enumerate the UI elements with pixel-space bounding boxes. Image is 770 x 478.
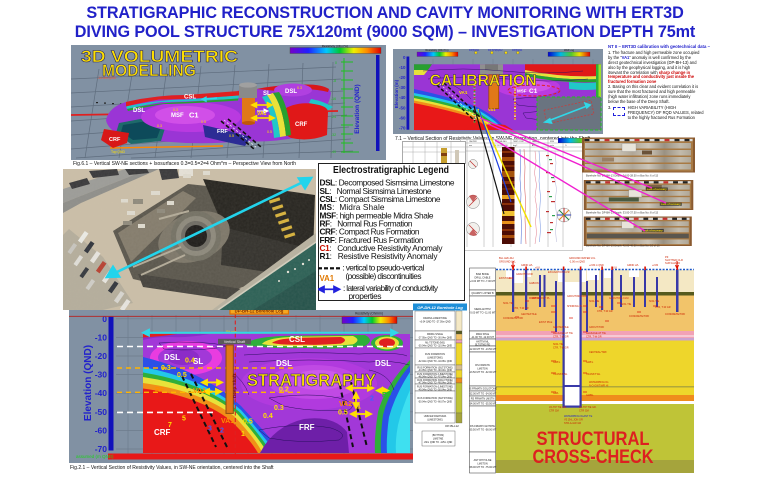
svg-text:GROUND LVL: GROUND LVL [499,259,516,263]
svg-text:GEOTEXTILE: GEOTEXTILE [521,313,537,316]
svg-text:properties: properties [349,291,382,301]
svg-text:CROSS-CHECK: CROSS-CHECK [533,446,654,468]
svg-text:0.5: 0.5 [338,410,348,417]
svg-text:0: 0 [335,61,337,65]
svg-text:SOIL TIE: SOIL TIE [503,302,513,305]
svg-text:TRANST WL: TRANST WL [586,373,601,376]
svg-text:-11.00 TO -12.00 MT: -11.00 TO -12.00 MT [471,336,495,339]
svg-text:STR-A-GW GR: STR-A-GW GR [564,422,581,425]
svg-text:CALIPER: CALIPER [469,140,477,143]
svg-text:-5.00 MT TO -11.00 MT: -5.00 MT TO -11.00 MT [470,311,496,314]
svg-text:Well Log: Well Log [564,49,575,52]
svg-text:CONCRETE/TWF: CONCRETE/TWF [629,315,650,318]
svg-text:MSF: MSF [517,89,527,94]
svg-text:DSL: DSL [375,359,391,368]
svg-text:Resistivity (Ohm*m): Resistivity (Ohm*m) [322,45,349,48]
svg-text:DP-BH-12 Borehole Log: DP-BH-12 Borehole Log [235,310,284,314]
svg-text:GWFL: GWFL [586,361,594,364]
svg-text:OP-BH-12: OP-BH-12 [445,424,459,428]
svg-text:BH- H2b-DH: BH- H2b-DH [499,256,514,260]
svg-text:SOIL TIE: SOIL TIE [621,303,631,306]
svg-text:DSL: DSL [276,359,292,368]
svg-text:GRND LVL: GRND LVL [627,264,639,267]
svg-text:GABION: GABION [529,282,539,285]
svg-text:RF: RF [155,387,165,394]
svg-text:GROUND WATER LVL: GROUND WATER LVL [569,256,596,260]
svg-text:-82m QND TO -115m QND: -82m QND TO -115m QND [424,441,453,444]
svg-text:EXCAVATION CVR: EXCAVATION CVR [548,271,570,274]
svg-text:R1: Resistive Resistivity An: R1: Resistive Resistivity Anomaly [320,251,439,261]
svg-text:0: 0 [403,55,406,60]
svg-text:Resistivity (Ohm*m): Resistivity (Ohm*m) [426,49,449,52]
svg-text:CONCRETE/TWF: CONCRETE/TWF [665,313,686,316]
svg-text:-10: -10 [399,65,406,70]
svg-text:-70: -70 [399,126,406,131]
svg-text:-70: -70 [95,444,108,454]
svg-text:DSL: DSL [285,89,297,95]
svg-text:GROUT/TWF: GROUT/TWF [589,326,605,329]
svg-text:Elevation (m): Elevation (m) [394,79,399,108]
svg-text:Lack of recovery: Lack of recovery [661,203,681,206]
svg-text:SUP.GUARD: SUP.GUARD [665,261,680,265]
svg-text:us/m: us/m [550,145,554,147]
svg-text:VA2: VA2 [339,401,352,408]
svg-text:+0.8: +0.8 [612,267,617,270]
svg-text:7: 7 [168,422,172,429]
svg-text:MSF: MSF [171,113,184,119]
svg-text:RF: RF [382,392,392,399]
svg-text:0.3: 0.3 [274,405,284,412]
svg-text:-44.05m QND TO -46.04m QND: -44.05m QND TO -46.04m QND [418,369,452,372]
svg-text:-13.50 MT TO -32.00 MT: -13.50 MT TO -32.00 MT [469,371,497,374]
svg-text:+2.80: +2.80 [652,264,659,267]
svg-text:-20: -20 [95,351,108,361]
svg-text:-30.04m QND TO -32.04m QND: -30.04m QND TO -32.04m QND [418,345,452,348]
svg-text:CRF: CRF [295,122,308,128]
svg-text:DP(B)#11: DP(B)#11 [512,49,523,52]
svg-text:Borehole No: DP-BH-13 Dep: Borehole No: DP-BH-13 Depth: 24.00-28.50… [586,174,659,178]
svg-text:Vertical Shaft: Vertical Shaft [224,340,245,344]
svg-text:RS FRMATN LMSTN: RS FRMATN LMSTN [471,398,495,401]
svg-text:VA1: VA1 [459,90,468,95]
svg-text:CTR, T-W GR: CTR, T-W GR [597,310,613,313]
svg-text:DP-BH(B)#12: DP-BH(B)#12 [488,49,503,52]
svg-text:0° 90° 180° 270°: 0° 90° 180° 270° [495,145,509,147]
svg-text:-60: -60 [95,425,108,435]
svg-text:-40: -40 [399,95,406,100]
svg-text:-35.50 MT TO -58.00 MT: -35.50 MT TO -58.00 MT [469,428,497,431]
svg-text:0.2: 0.2 [279,387,289,394]
svg-text:-20: -20 [399,75,406,80]
svg-text:CSL: CSL [289,335,305,344]
svg-text:RS FRMATN DOLOTONE: RS FRMATN DOLOTONE [469,388,497,391]
svg-text:TRANST WL: TRANST WL [553,373,568,376]
svg-text:1: 1 [357,404,361,411]
svg-text:JET GROUT PL: JET GROUT PL [532,297,550,300]
svg-text:-50: -50 [95,407,108,417]
svg-text:0.4: 0.4 [263,413,273,420]
svg-text:0.3: 0.3 [161,365,171,372]
svg-text:-47.04m QND TO -49.04m QND: -47.04m QND TO -49.04m QND [418,382,452,385]
svg-text:EXISTING: EXISTING [499,277,511,280]
svg-text:GRAVITY CVR: GRAVITY CVR [516,273,533,276]
svg-text:GROUTING CLM: GROUTING CLM [567,295,586,298]
svg-text:GROUTING CLM: GROUTING CLM [609,297,628,300]
svg-text:+3.00 MT TO -7.00 MT: +3.00 MT TO -7.00 MT [470,280,496,283]
svg-text:N-O-GWT/WR HI: N-O-GWT/WR HI [589,384,609,387]
svg-text:CSL: CSL [184,95,196,101]
svg-text:-24: -24 [331,115,336,119]
svg-text:MODELLING: MODELLING [102,61,196,80]
svg-text:CTR CM: CTR CM [549,409,559,412]
svg-text:CONCRETE/TWF: CONCRETE/TWF [503,317,524,320]
svg-text:VA1: VA1 [320,274,335,283]
svg-text:VA1: VA1 [488,107,496,112]
svg-text:GWRL: GWRL [586,394,594,397]
svg-text:Lack of recovery: Lack of recovery [647,188,667,191]
svg-text:-1.00 mt QND: -1.00 mt QND [569,259,585,263]
svg-text:CTR, T-W GR: CTR, T-W GR [513,307,529,310]
svg-text:(possible) discontinuities: (possible) discontinuities [346,271,422,281]
svg-text:0.5: 0.5 [229,134,234,138]
svg-text:+0.8: +0.8 [535,267,540,270]
svg-text:OP-DH-12 Borehole Log: OP-DH-12 Borehole Log [417,305,463,310]
svg-text:Elevation (QND): Elevation (QND) [83,345,94,421]
svg-text:-60: -60 [399,116,406,121]
svg-text:3: 3 [208,426,212,433]
svg-text:GRND LVL: GRND LVL [521,264,533,267]
svg-text:Resistivity (Ohm/m): Resistivity (Ohm/m) [355,312,383,316]
svg-text:mm: mm [469,145,472,147]
svg-text:GWL: GWL [553,392,559,395]
svg-text:Lack of recovery: Lack of recovery [643,229,663,232]
svg-text:-40: -40 [95,388,108,398]
svg-text:CTR, T-W GR: CTR, T-W GR [586,335,602,338]
svg-text:OPTICAL IMG: OPTICAL IMG [495,140,507,143]
svg-text:+3.04 QND TO -27.05m QND: +3.04 QND TO -27.05m QND [419,320,451,323]
svg-text:-27.05m QND TO -30.04m QND: -27.05m QND TO -30.04m QND [418,336,452,339]
svg-text:-32.04m QND TO -44.05m QND: -32.04m QND TO -44.05m QND [418,360,452,363]
svg-text:QUARRY LIFTER B: QUARRY LIFTER B [471,292,494,295]
svg-text:SOIL TIE: SOIL TIE [649,300,659,303]
svg-text:Deep Shaft: Deep Shaft [232,374,237,398]
svg-text:Borehole No: DP-BH-13 Dep: Borehole No: DP-BH-13 Depth: 33.00-37.50… [586,211,659,215]
svg-text:0.3: 0.3 [173,108,178,112]
svg-text:0.3: 0.3 [157,124,162,128]
svg-text:-49.04m QND TO -50.04m QND: -49.04m QND TO -50.04m QND [418,389,452,392]
svg-text:-32: -32 [331,133,336,137]
svg-text:-30: -30 [399,85,406,90]
svg-text:degC: degC [513,145,518,147]
svg-text:CTR, T-W GR: CTR, T-W GR [655,306,671,309]
svg-text:(LIMESTONE): (LIMESTONE) [427,418,443,421]
svg-text:2: 2 [370,396,374,403]
svg-text:-50.04m QND TO -66.07m QND: -50.04m QND TO -66.07m QND [418,400,452,403]
svg-text:Electrostratigraphic Legend: Electrostratigraphic Legend [333,165,449,176]
svg-text:-12.00 MT TO -13.50 MT: -12.00 MT TO -13.50 MT [469,348,497,351]
svg-text:-34.00 MT TO -35.50 MT: -34.00 MT TO -35.50 MT [469,403,497,406]
svg-text:0.5: 0.5 [177,372,187,379]
svg-text:CTR, T-W GR: CTR, T-W GR [553,335,569,338]
svg-text:SOIL TIE: SOIL TIE [589,300,599,303]
svg-text:CTR CM: CTR CM [579,409,589,412]
svg-text:0.5: 0.5 [201,120,206,124]
svg-text:-10: -10 [95,332,108,342]
svg-text:STRATIGRAPHY: STRATIGRAPHY [247,370,376,390]
svg-text:-8: -8 [333,79,336,83]
svg-text:GAMMA: GAMMA [532,140,540,143]
svg-text:+2.80 m QND: +2.80 m QND [589,264,604,267]
svg-text:GWFL: GWFL [553,361,561,364]
svg-text:SHORING PL: SHORING PL [567,305,583,308]
svg-text:API: API [532,144,535,147]
svg-text:0.3: 0.3 [297,86,302,90]
svg-text:1: 1 [241,431,245,438]
svg-text:EXIST PILE: EXIST PILE [539,321,553,324]
svg-text:VA1: VA1 [257,111,267,117]
svg-text:DSL: DSL [133,108,145,114]
svg-text:0: 0 [102,314,107,324]
svg-text:-32.00 MT TO -34.00 MT: -32.00 MT TO -34.00 MT [469,393,497,396]
svg-text:SL: SL [263,91,271,97]
svg-text:-30: -30 [95,370,108,380]
svg-text:VA1: VA1 [193,388,206,395]
svg-text:5: 5 [182,416,186,423]
svg-text:C1: C1 [189,111,199,120]
svg-text:SLTSTNE RD: SLTSTNE RD [475,344,491,347]
svg-text:CRF: CRF [154,428,171,437]
svg-text:VA1: VA1 [221,418,234,425]
svg-text:-40: -40 [331,150,336,154]
svg-text:Elevation (QND): Elevation (QND) [354,84,361,133]
svg-text:TEMP COND: TEMP COND [513,141,524,143]
svg-text:GEOTEXTILE: GEOTEXTILE [553,326,569,329]
svg-text:DSL: DSL [164,353,180,362]
svg-text:CALIBRATION: CALIBRATION [430,73,537,90]
svg-text:CRF: CRF [109,137,121,143]
svg-text:CENTRAL/TWF: CENTRAL/TWF [589,351,607,354]
svg-text:FRF: FRF [217,129,228,135]
svg-text:-16: -16 [331,97,336,101]
svg-text:Top QND: Top QND [111,150,125,154]
svg-text:0.5: 0.5 [243,418,253,425]
svg-text:2: 2 [220,427,224,434]
svg-text:C1: C1 [529,88,538,95]
svg-text:DP(B)#11: DP(B)#11 [469,49,480,52]
svg-text:0.5: 0.5 [267,130,272,134]
svg-text:-50: -50 [399,106,406,111]
svg-text:Borehole No: DP-BH-13 Dep: Borehole No: DP-BH-13 Depth: 42.00-46.50… [586,244,660,248]
svg-text:-58.00 MT TO -75.00 MT: -58.00 MT TO -75.00 MT [469,466,497,469]
svg-text:0.4: 0.4 [185,358,195,365]
svg-text:assumed (m QND): assumed (m QND) [76,454,114,459]
svg-text:FRF: FRF [299,423,315,432]
svg-text:CTR, T-W GR: CTR, T-W GR [553,346,569,349]
